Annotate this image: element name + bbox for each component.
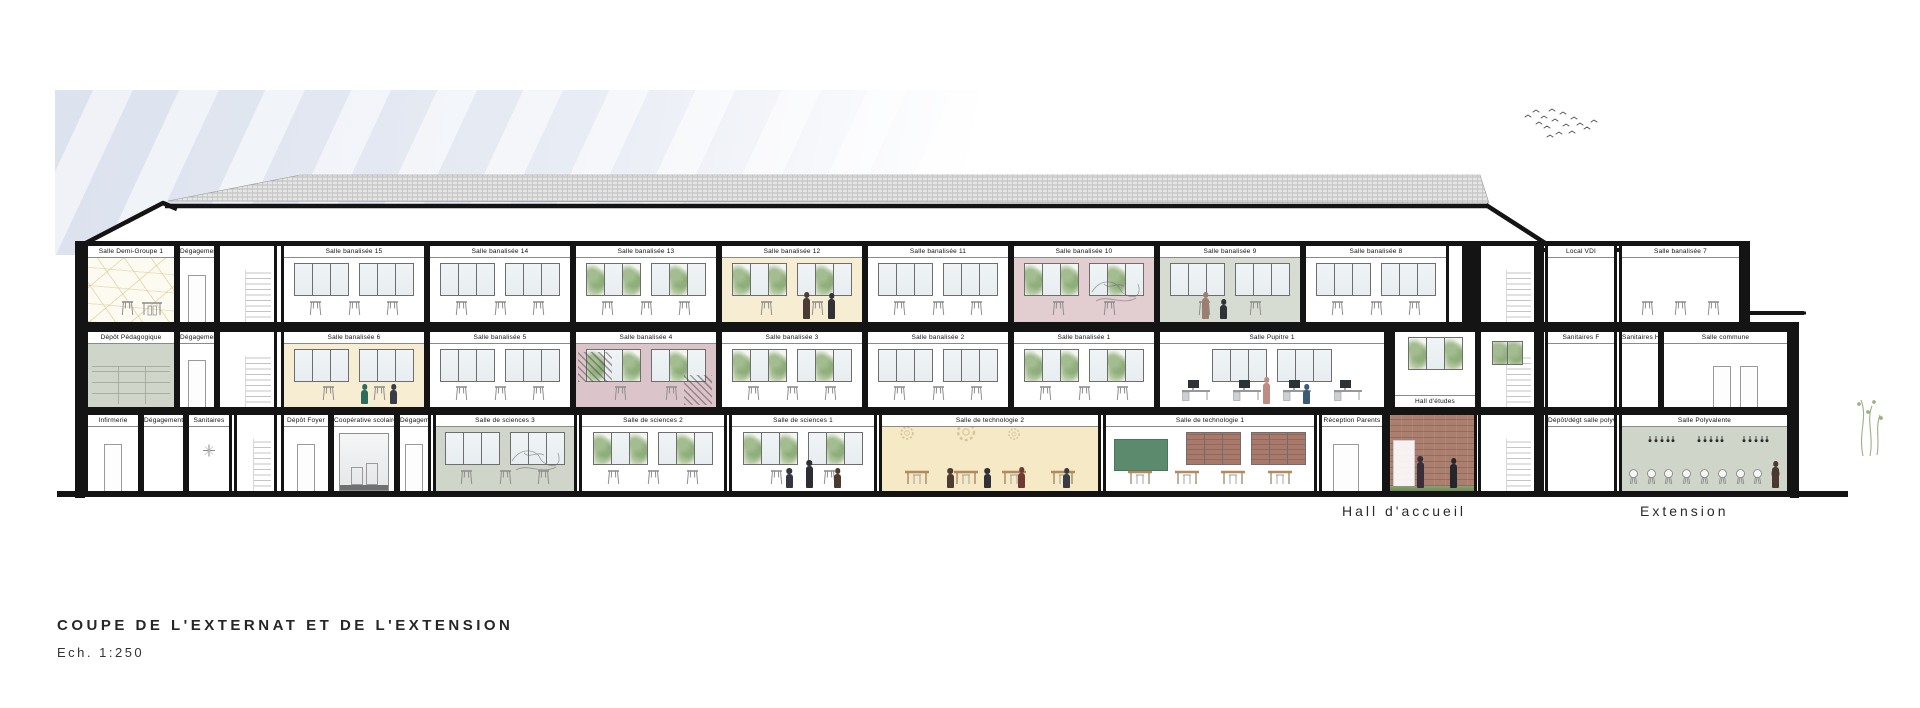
window <box>593 432 648 465</box>
room-body <box>1548 258 1614 322</box>
window-pane <box>1270 433 1288 464</box>
window-pane <box>1418 264 1435 295</box>
room-stairwell <box>1478 415 1537 491</box>
window-pane <box>980 264 997 295</box>
window-row <box>576 263 716 296</box>
room-label: Salle Polyvalente <box>1622 415 1787 427</box>
person-head <box>1064 468 1070 474</box>
person-head <box>1451 458 1457 464</box>
wall <box>1536 246 1544 491</box>
window-pane <box>1317 264 1335 295</box>
window-pane <box>378 264 396 295</box>
room-body <box>237 415 274 491</box>
room-hall-accueil-space <box>1387 415 1477 491</box>
window-pane <box>331 264 348 295</box>
stairs <box>1506 439 1531 491</box>
room-d-gagement-r-1: Dégagement R+1 <box>177 332 217 407</box>
furniture-stool <box>746 384 761 406</box>
room-label: Salle banalisée 7 <box>1622 246 1739 258</box>
furniture-row <box>1622 299 1739 321</box>
wall <box>1790 322 1799 498</box>
window-pane <box>313 350 331 381</box>
scribble <box>1086 272 1150 315</box>
room-stairwell <box>217 332 277 407</box>
furniture-stool <box>823 384 838 406</box>
window-pane <box>1236 264 1254 295</box>
room-label: Salle banalisée 14 <box>430 246 570 258</box>
person-head <box>391 384 397 390</box>
room-body <box>1548 344 1614 407</box>
window <box>943 263 998 296</box>
room-body <box>430 258 570 322</box>
window <box>808 432 863 465</box>
window <box>732 263 787 296</box>
furniture-stool <box>1248 299 1263 321</box>
window <box>505 263 560 296</box>
window-pane <box>1272 264 1289 295</box>
furniture-chair <box>1698 469 1711 490</box>
window-row <box>1395 337 1475 370</box>
furniture-pcdesk <box>1232 378 1262 406</box>
grass <box>1390 486 1474 491</box>
window-pane <box>652 350 670 381</box>
room-label: Salle banalisée 6 <box>284 332 424 344</box>
window <box>505 349 560 382</box>
window <box>1186 432 1241 465</box>
room-body <box>1160 344 1384 407</box>
person-head <box>1221 299 1227 305</box>
room-label: Dégagement R+1 <box>180 332 214 344</box>
room-salle-polyvalente: Salle Polyvalente <box>1619 415 1790 491</box>
person <box>1417 462 1424 488</box>
scribble <box>506 441 570 484</box>
window-row <box>430 263 570 296</box>
room-body <box>180 258 214 322</box>
furniture-row <box>1106 466 1314 490</box>
furniture-stool <box>810 299 825 321</box>
window <box>878 263 933 296</box>
window-pane <box>1223 433 1240 464</box>
window-pane <box>441 350 459 381</box>
furniture-stool <box>1407 299 1422 321</box>
furniture-stool <box>1640 299 1655 321</box>
window-pane <box>915 264 932 295</box>
room-body <box>1014 258 1154 322</box>
window-row <box>1106 432 1314 465</box>
room-label: Local VDI <box>1548 246 1614 258</box>
window-pane <box>751 350 769 381</box>
person <box>1303 390 1310 404</box>
person-head <box>807 460 813 466</box>
window-pane <box>845 433 862 464</box>
furniture-stool <box>600 299 615 321</box>
window-row <box>732 432 874 465</box>
room-label: Salle de technologie 1 <box>1106 415 1314 427</box>
window-pane <box>962 264 980 295</box>
window-pane <box>623 264 640 295</box>
gear <box>955 427 977 448</box>
room-salle-banalis-e-4: Salle banalisée 4 <box>573 332 719 407</box>
window <box>294 349 349 382</box>
room-salle-banalis-e-10: Salle banalisée 10 <box>1011 246 1157 322</box>
room-d-p-t-p-dagogique: Dépôt Pédagogique <box>85 332 177 407</box>
window <box>1381 263 1436 296</box>
furniture-table <box>140 299 164 321</box>
window-pane <box>652 264 670 295</box>
window-pane <box>506 350 524 381</box>
window-pane <box>1171 264 1189 295</box>
person <box>1202 298 1209 319</box>
furniture-bdesk <box>1267 466 1293 490</box>
floor-slab <box>1742 311 1804 315</box>
window-row <box>1160 263 1300 296</box>
window <box>359 263 414 296</box>
window <box>1089 349 1144 382</box>
window-pane <box>506 264 524 295</box>
window-pane <box>816 264 834 295</box>
window <box>943 349 998 382</box>
ceiling-lights <box>1696 432 1724 450</box>
window-pane <box>744 433 762 464</box>
ceiling-lights <box>1741 432 1769 450</box>
person <box>828 299 835 319</box>
room-label: Salle banalisée 9 <box>1160 246 1300 258</box>
furniture-stool <box>931 299 946 321</box>
room-salle-banalis-e-3: Salle banalisée 3 <box>719 332 865 407</box>
window-pane <box>1400 264 1418 295</box>
room-label: Sanitaires H <box>1622 332 1658 344</box>
window-pane <box>1213 350 1231 381</box>
furniture-row <box>1622 469 1787 490</box>
window-pane <box>1409 338 1427 369</box>
window-pane <box>798 264 816 295</box>
window-pane <box>1126 350 1143 381</box>
drawing-scale: Ech. 1:250 <box>57 645 144 660</box>
window-pane <box>477 350 494 381</box>
room-label: Salle banalisée 12 <box>722 246 862 258</box>
window <box>732 349 787 382</box>
window-pane <box>809 433 827 464</box>
window-pane <box>677 433 695 464</box>
furniture-stool <box>493 299 508 321</box>
person <box>984 474 991 488</box>
room-label: Sanitaires <box>189 415 229 427</box>
person-head <box>362 384 368 390</box>
extension-label: Extension <box>1640 503 1728 519</box>
room-body <box>868 258 1008 322</box>
furniture-stool <box>459 468 474 490</box>
room-body <box>576 344 716 407</box>
furniture-stool <box>531 299 546 321</box>
window-pane <box>1108 350 1126 381</box>
drawing-title: COUPE DE L'EXTERNAT ET DE L'EXTENSION <box>57 617 513 634</box>
window-pane <box>1189 264 1207 295</box>
room-label: Salle de sciences 1 <box>732 415 874 427</box>
room-sanitaires-f: Sanitaires F <box>1545 332 1617 407</box>
furniture-bdesk <box>1220 466 1246 490</box>
room-body <box>722 344 862 407</box>
window <box>440 263 495 296</box>
room-label: Salle banalisée 5 <box>430 332 570 344</box>
door <box>188 275 206 322</box>
window-pane <box>1382 264 1400 295</box>
window-pane <box>459 264 477 295</box>
window-pane <box>524 264 542 295</box>
furniture-stool <box>646 468 661 490</box>
room-label: Salle banalisée 11 <box>868 246 1008 258</box>
room-stairwell <box>234 415 277 491</box>
furniture-stool <box>347 299 362 321</box>
door <box>104 444 122 491</box>
room-body <box>1622 344 1658 407</box>
room-salle-banalis-e-15: Salle banalisée 15 <box>281 246 427 322</box>
room-label: Salle banalisée 4 <box>576 332 716 344</box>
room-body <box>88 344 174 407</box>
furniture-chair <box>1645 469 1658 490</box>
gear-icon <box>1007 428 1021 445</box>
ceiling-lights <box>1647 432 1675 450</box>
window <box>1024 263 1079 296</box>
door <box>1740 366 1758 407</box>
person <box>1263 383 1270 404</box>
window-pane <box>659 433 677 464</box>
door <box>1333 444 1359 491</box>
stairs <box>245 270 271 322</box>
window-pane <box>733 350 751 381</box>
room-body <box>1322 427 1382 491</box>
room-salle-banalis-e-11: Salle banalisée 11 <box>865 246 1011 322</box>
furniture-chair <box>1627 469 1640 490</box>
room-body <box>868 344 1008 407</box>
window-pane <box>962 350 980 381</box>
fan-icon <box>203 444 216 461</box>
room-body <box>576 258 716 322</box>
window <box>440 349 495 382</box>
person <box>1063 474 1070 488</box>
furniture-stool <box>308 299 323 321</box>
window <box>1316 263 1371 296</box>
glass-front <box>339 433 389 491</box>
room-label: Dégagement <box>144 415 183 427</box>
window-pane <box>1061 264 1078 295</box>
room-salle-demi-groupe-1: Salle Demi-Groupe 1 <box>85 246 177 322</box>
room-salle-banalis-e-8: Salle banalisée 8 <box>1303 246 1449 322</box>
window <box>1024 349 1079 382</box>
furniture-row <box>868 384 1008 406</box>
window-pane <box>1314 350 1331 381</box>
room-body <box>1395 332 1475 395</box>
furniture-stool <box>321 384 336 406</box>
door <box>297 444 315 491</box>
window-row <box>1481 337 1534 365</box>
room-body <box>189 427 229 491</box>
furniture-stool <box>931 384 946 406</box>
room-label: Réception Parents <box>1322 415 1382 427</box>
furniture-stool <box>120 299 135 321</box>
room-body <box>732 427 874 491</box>
room-label: Dégagement <box>400 415 428 427</box>
window-pane <box>769 264 786 295</box>
window-pane <box>1288 433 1305 464</box>
furniture-stool <box>969 384 984 406</box>
room-salle-banalis-e-7: Salle banalisée 7 <box>1619 246 1742 322</box>
furniture-row <box>430 299 570 321</box>
window-pane <box>816 350 834 381</box>
window-pane <box>897 264 915 295</box>
person <box>806 466 813 488</box>
wall <box>75 241 85 498</box>
room-salle-banalis-e-5: Salle banalisée 5 <box>427 332 573 407</box>
furniture-pcdesk <box>1181 378 1211 406</box>
window-pane <box>827 433 845 464</box>
sketch-box <box>366 463 378 485</box>
wall <box>1462 246 1478 322</box>
room-body <box>88 258 174 322</box>
furniture-row <box>1160 378 1384 406</box>
furniture-stool <box>685 468 700 490</box>
window-pane <box>915 350 932 381</box>
door <box>1713 366 1731 407</box>
person-head <box>787 468 793 474</box>
furniture-row <box>430 384 570 406</box>
person-head <box>804 292 810 298</box>
scribble-icon <box>506 466 570 483</box>
room-label: Salle banalisée 13 <box>576 246 716 258</box>
furniture-row <box>88 299 174 321</box>
room-body <box>220 246 274 322</box>
window-pane <box>623 350 640 381</box>
window-row <box>284 349 424 382</box>
room-label: Salle banalisée 3 <box>722 332 862 344</box>
furniture-stool <box>969 299 984 321</box>
furniture-stool <box>1038 384 1053 406</box>
window-pane <box>1278 350 1296 381</box>
window-pane <box>1090 350 1108 381</box>
furniture-row <box>284 299 424 321</box>
room-body <box>882 427 1098 491</box>
window-pane <box>459 350 477 381</box>
window-pane <box>1207 264 1224 295</box>
window-row <box>722 349 862 382</box>
furniture-row <box>868 299 1008 321</box>
window <box>359 349 414 382</box>
glass-base <box>340 485 388 490</box>
room-label: Salle banalisée 1 <box>1014 332 1154 344</box>
window-pane <box>477 264 494 295</box>
window-row <box>1306 263 1446 296</box>
person-head <box>1418 456 1424 462</box>
furniture-stool <box>677 299 692 321</box>
window-pane <box>670 264 688 295</box>
furniture-bdesk <box>953 466 979 490</box>
window-pane <box>769 350 786 381</box>
window-pane <box>944 264 962 295</box>
window-row <box>1014 349 1154 382</box>
room-body <box>284 258 424 322</box>
room-d-p-t-d-gt-salle-polyvalente: Dépôt/dégt salle polyvalente <box>1545 415 1617 491</box>
person-head <box>1203 292 1209 298</box>
room-body <box>284 344 424 407</box>
gear <box>899 427 915 446</box>
window-pane <box>1493 342 1508 364</box>
room-salle-pupitre-1: Salle Pupitre 1 <box>1157 332 1387 407</box>
room-label: Dépôt/dégt salle polyvalente <box>1548 415 1614 427</box>
window-pane <box>834 264 851 295</box>
lights-icon <box>1696 432 1724 449</box>
room-label: Salle Pupitre 1 <box>1160 332 1384 344</box>
room-body <box>1306 258 1446 322</box>
window-pane <box>1187 433 1205 464</box>
window <box>651 263 706 296</box>
window-pane <box>542 350 559 381</box>
door <box>405 444 423 491</box>
window-row <box>284 263 424 296</box>
window-pane <box>1205 433 1223 464</box>
furniture-stool <box>385 299 400 321</box>
window-row <box>868 349 1008 382</box>
room-label: Sanitaires F <box>1548 332 1614 344</box>
room-body <box>1106 427 1314 491</box>
room-body <box>1622 427 1787 491</box>
window-pane <box>331 350 348 381</box>
room-label: Infirmerie <box>88 415 138 427</box>
furniture-chair <box>1662 469 1675 490</box>
window <box>586 263 641 296</box>
window-row <box>722 263 862 296</box>
room-local-vdi: Local VDI <box>1545 246 1617 322</box>
room-coop-rative-scolaire: Coopérative scolaire <box>331 415 397 491</box>
window-pane <box>695 433 712 464</box>
window-pane <box>688 264 705 295</box>
furniture-bdesk <box>904 466 930 490</box>
person <box>1220 305 1227 319</box>
room-label: Salle de sciences 2 <box>582 415 724 427</box>
furniture-stool <box>606 468 621 490</box>
room-stairwell <box>1478 246 1537 322</box>
room-salle-banalis-e-14: Salle banalisée 14 <box>427 246 573 322</box>
furniture-chair <box>1680 469 1693 490</box>
room-hall-d-tudes: Hall d'études <box>1392 332 1478 407</box>
room-salle-banalis-e-13: Salle banalisée 13 <box>573 246 719 322</box>
stairs <box>245 356 271 407</box>
room-stairwell <box>217 246 277 322</box>
furniture-row <box>732 468 874 490</box>
furniture-stool <box>372 384 387 406</box>
furniture-row <box>1160 299 1300 321</box>
window-pane <box>605 264 623 295</box>
window-pane <box>1335 264 1353 295</box>
room-body <box>722 258 862 322</box>
room-body <box>1622 258 1739 322</box>
room-salle-de-technologie-1: Salle de technologie 1 <box>1103 415 1317 491</box>
person-head <box>1304 384 1310 390</box>
window-pane <box>762 433 780 464</box>
gear-icon <box>899 428 915 445</box>
window-pane <box>1296 350 1314 381</box>
room-body <box>144 427 183 491</box>
room-salle-banalis-e-9: Salle banalisée 9 <box>1157 246 1303 322</box>
room-body <box>1481 332 1534 407</box>
room-body <box>1160 258 1300 322</box>
window <box>658 432 713 465</box>
person <box>1018 473 1025 488</box>
window-pane <box>1043 264 1061 295</box>
person-head <box>1264 377 1270 383</box>
room-salle-de-technologie-2: Salle de technologie 2 <box>879 415 1101 491</box>
furniture-stool <box>1330 299 1345 321</box>
person <box>786 474 793 488</box>
gear-icon <box>955 430 977 447</box>
